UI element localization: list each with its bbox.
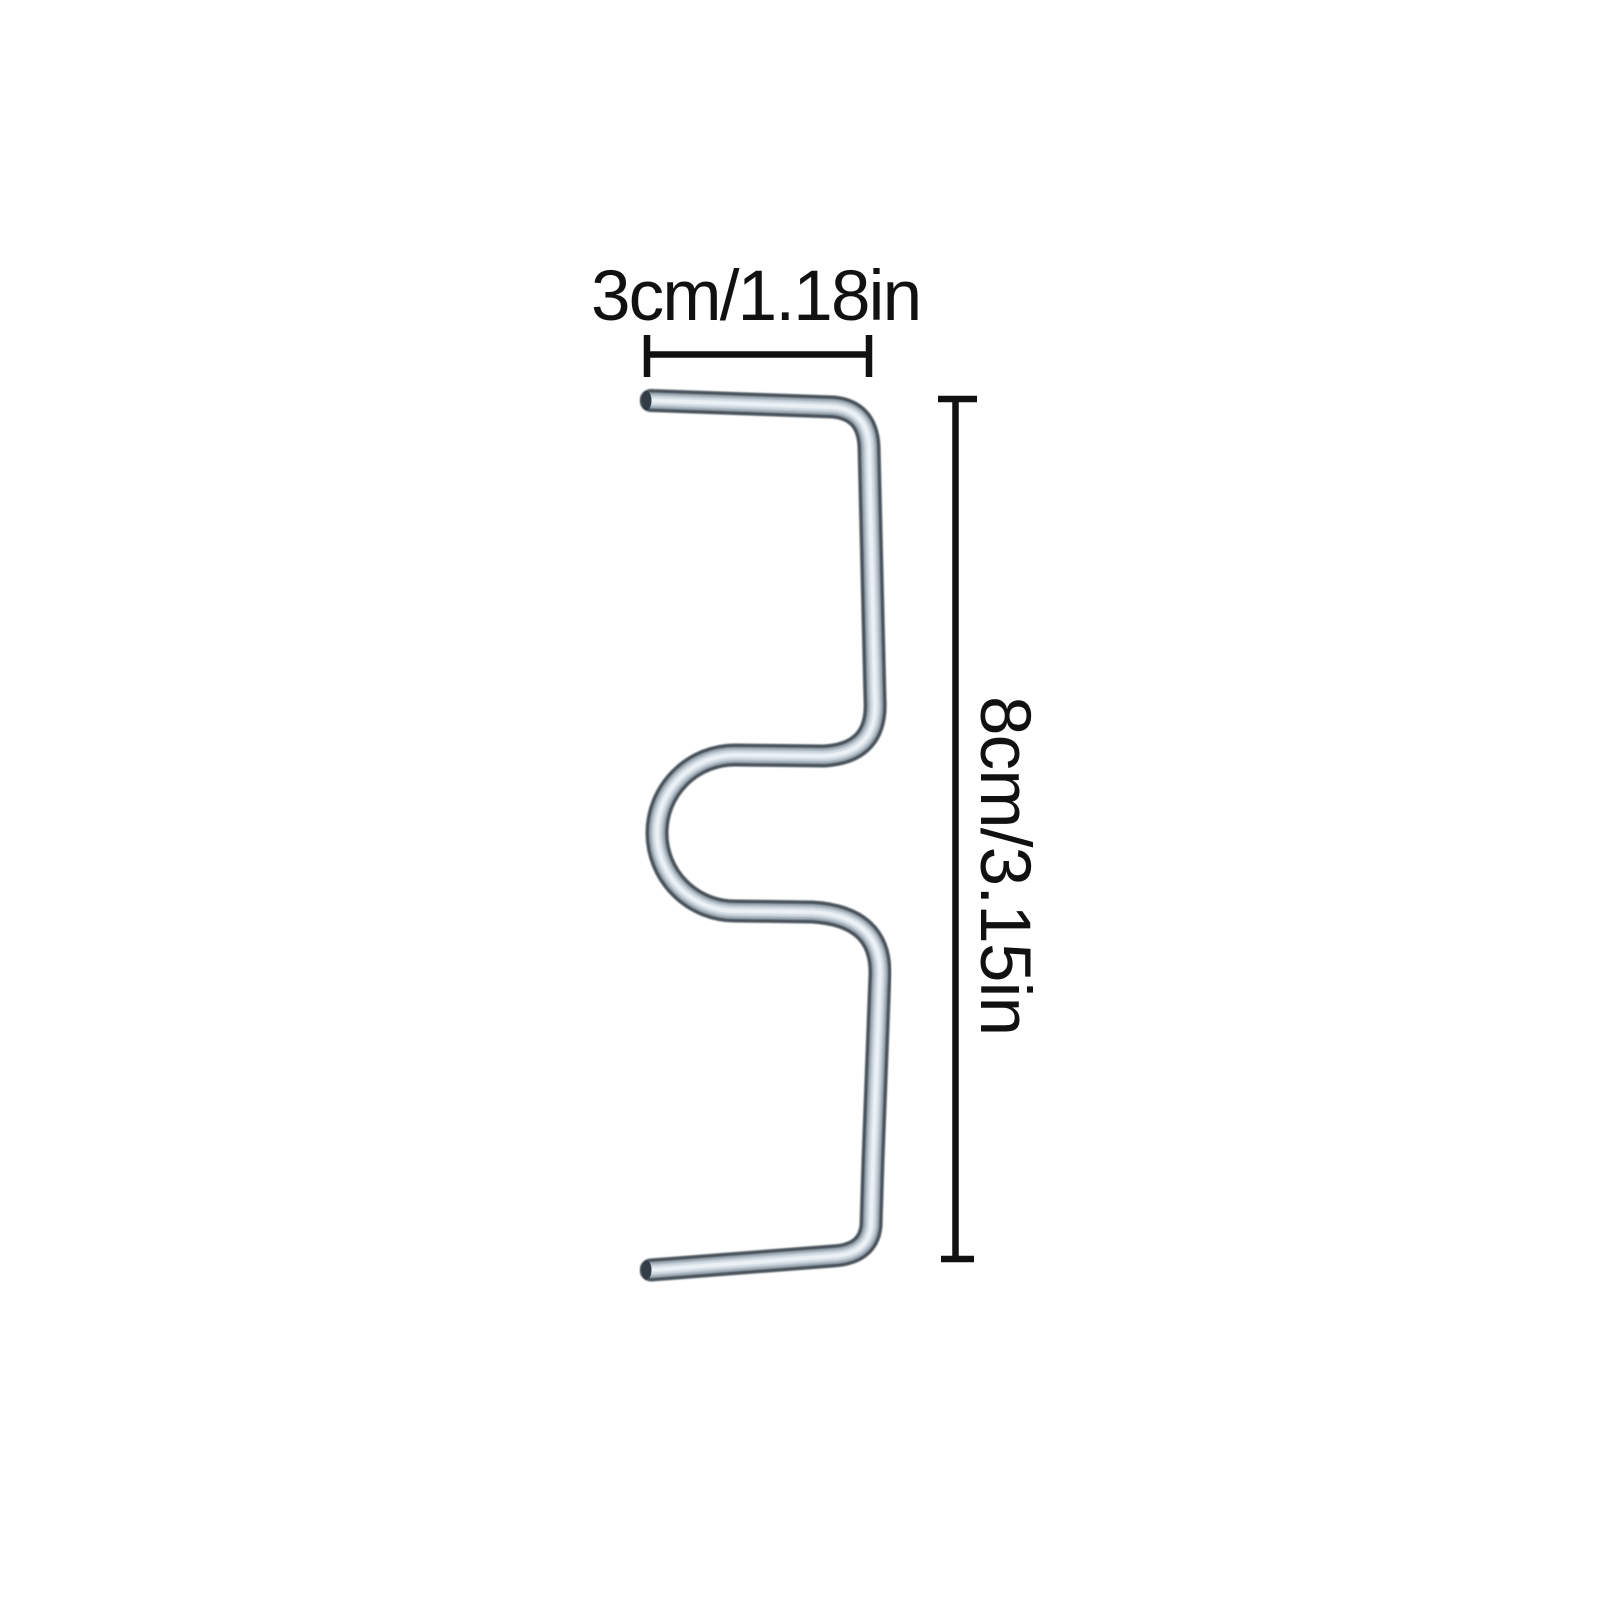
svg-text:8cm/3.15in: 8cm/3.15in [965,696,1044,1035]
svg-text:3cm/1.18in: 3cm/1.18in [591,257,920,336]
